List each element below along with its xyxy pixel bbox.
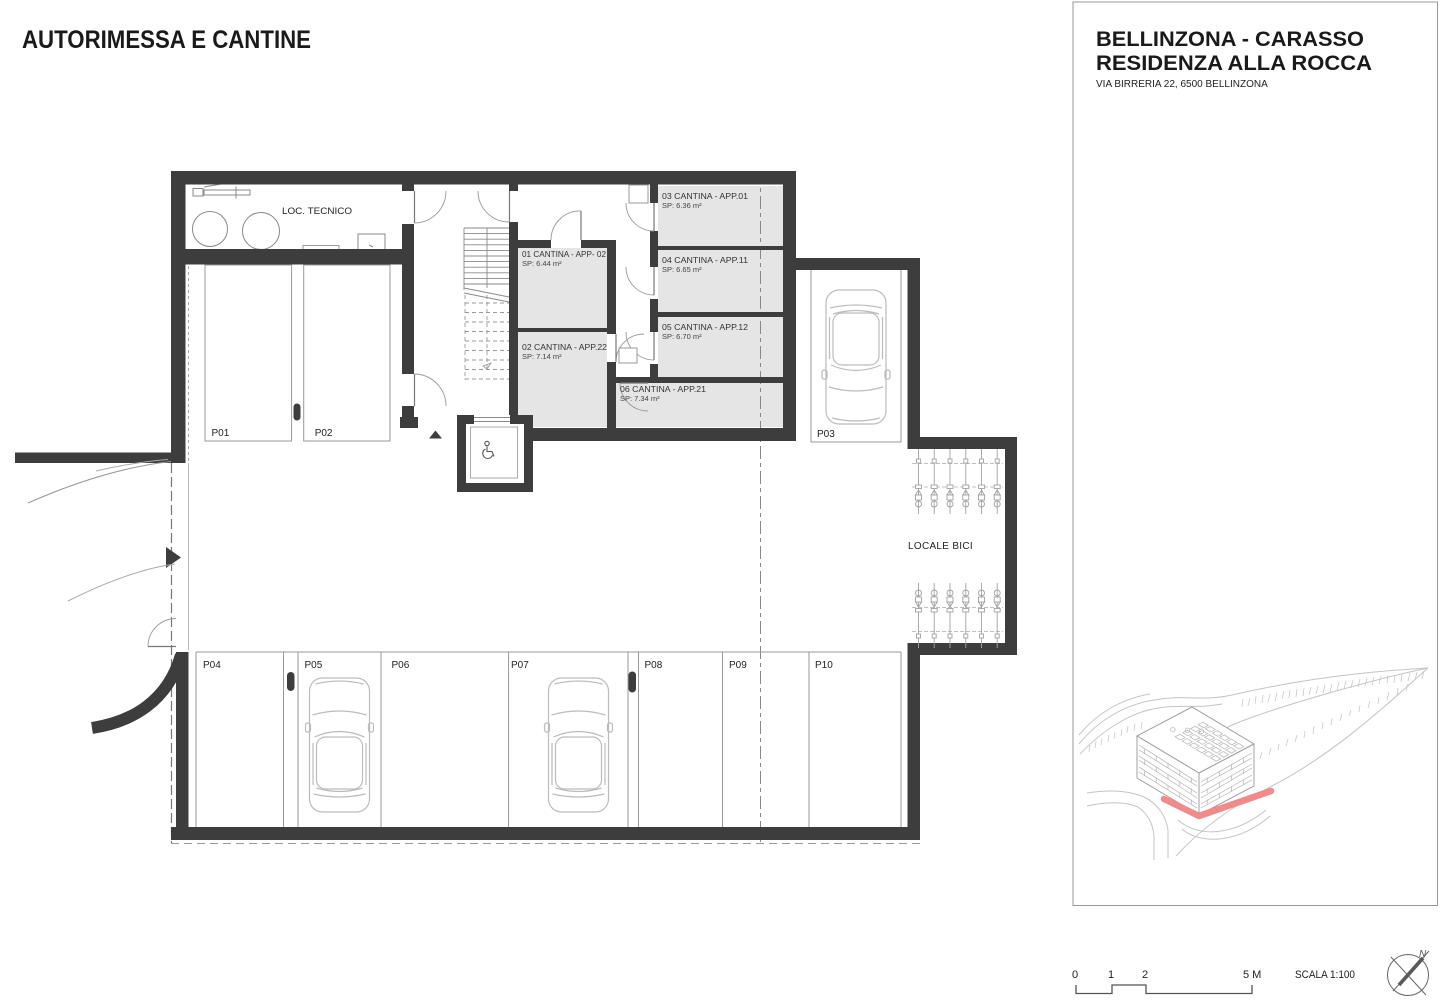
- svg-text:05 CANTINA - APP.12: 05 CANTINA - APP.12: [662, 322, 748, 332]
- svg-text:SP: 6.44 m²: SP: 6.44 m²: [522, 259, 562, 268]
- svg-text:AUTORIMESSA E CANTINE: AUTORIMESSA E CANTINE: [22, 26, 311, 54]
- svg-text:LOCALE BICI: LOCALE BICI: [908, 541, 973, 552]
- svg-text:SP: 7.14 m²: SP: 7.14 m²: [522, 352, 562, 361]
- svg-text:SP: 6.36 m²: SP: 6.36 m²: [662, 201, 702, 210]
- svg-text:P03: P03: [817, 429, 835, 440]
- svg-text:RESIDENZA ALLA ROCCA: RESIDENZA ALLA ROCCA: [1096, 51, 1372, 75]
- svg-text:02 CANTINA - APP.22: 02 CANTINA - APP.22: [522, 342, 607, 352]
- svg-text:P04: P04: [203, 660, 221, 671]
- svg-text:P05: P05: [305, 660, 323, 671]
- svg-text:P08: P08: [645, 660, 663, 671]
- svg-text:SP: 6.70 m²: SP: 6.70 m²: [662, 332, 702, 341]
- svg-text:04 CANTINA - APP.11: 04 CANTINA - APP.11: [662, 255, 748, 265]
- svg-text:P02: P02: [315, 428, 333, 439]
- svg-text:1: 1: [1108, 969, 1114, 981]
- svg-text:SCALA 1:100: SCALA 1:100: [1295, 969, 1355, 981]
- svg-text:VIA BIRRERIA 22, 6500 BELLINZO: VIA BIRRERIA 22, 6500 BELLINZONA: [1096, 79, 1268, 90]
- svg-text:0: 0: [1072, 969, 1078, 981]
- svg-text:BELLINZONA - CARASSO: BELLINZONA - CARASSO: [1096, 27, 1364, 51]
- svg-text:5 M: 5 M: [1243, 969, 1261, 981]
- svg-text:2: 2: [1142, 969, 1148, 981]
- svg-text:P07: P07: [511, 660, 529, 671]
- svg-text:P06: P06: [392, 660, 410, 671]
- svg-text:01 CANTINA - APP- 02: 01 CANTINA - APP- 02: [522, 249, 606, 259]
- svg-text:P10: P10: [815, 660, 833, 671]
- svg-text:P01: P01: [212, 428, 230, 439]
- svg-text:SP: 7.34 m²: SP: 7.34 m²: [620, 394, 660, 403]
- svg-text:P09: P09: [729, 660, 747, 671]
- svg-text:N: N: [1419, 949, 1427, 960]
- svg-text:SP: 6.65 m²: SP: 6.65 m²: [662, 265, 702, 274]
- svg-text:LOC. TECNICO: LOC. TECNICO: [282, 206, 352, 217]
- svg-text:03 CANTINA - APP.01: 03 CANTINA - APP.01: [662, 191, 748, 201]
- svg-text:06 CANTINA - APP.21: 06 CANTINA - APP.21: [620, 384, 706, 394]
